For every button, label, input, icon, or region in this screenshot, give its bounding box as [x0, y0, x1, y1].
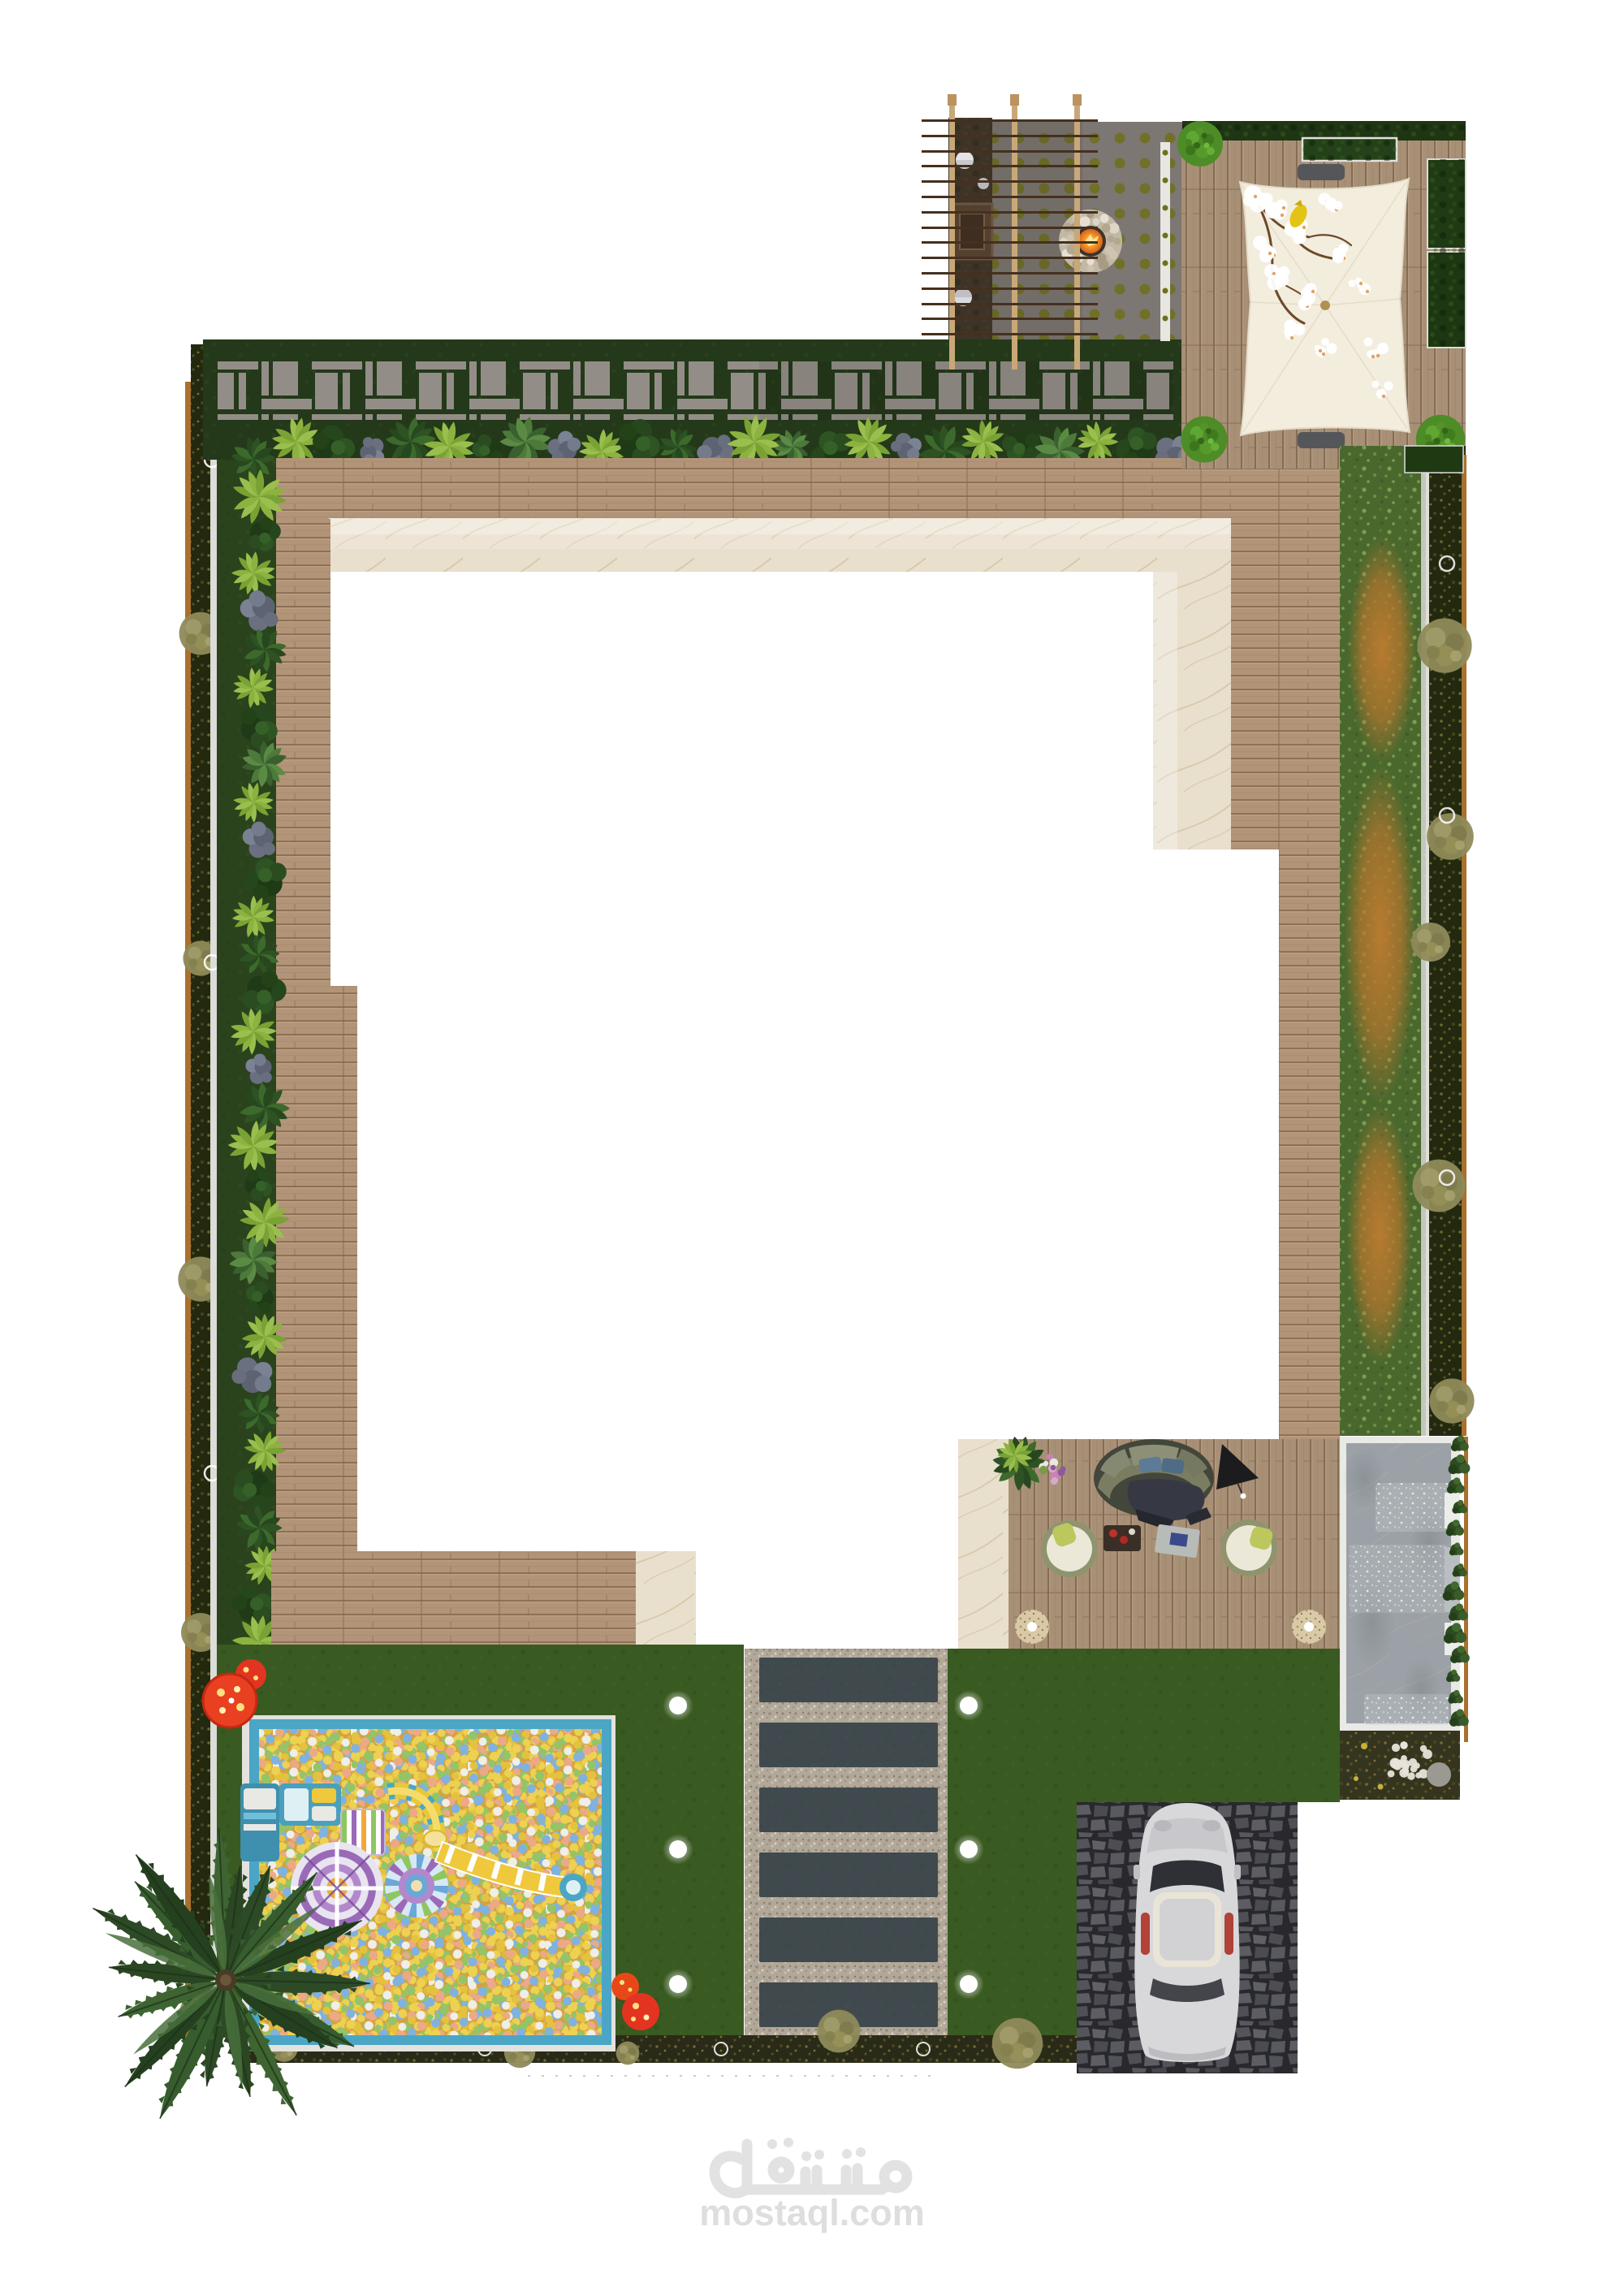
svg-text:mostaql.com: mostaql.com [699, 2192, 925, 2233]
